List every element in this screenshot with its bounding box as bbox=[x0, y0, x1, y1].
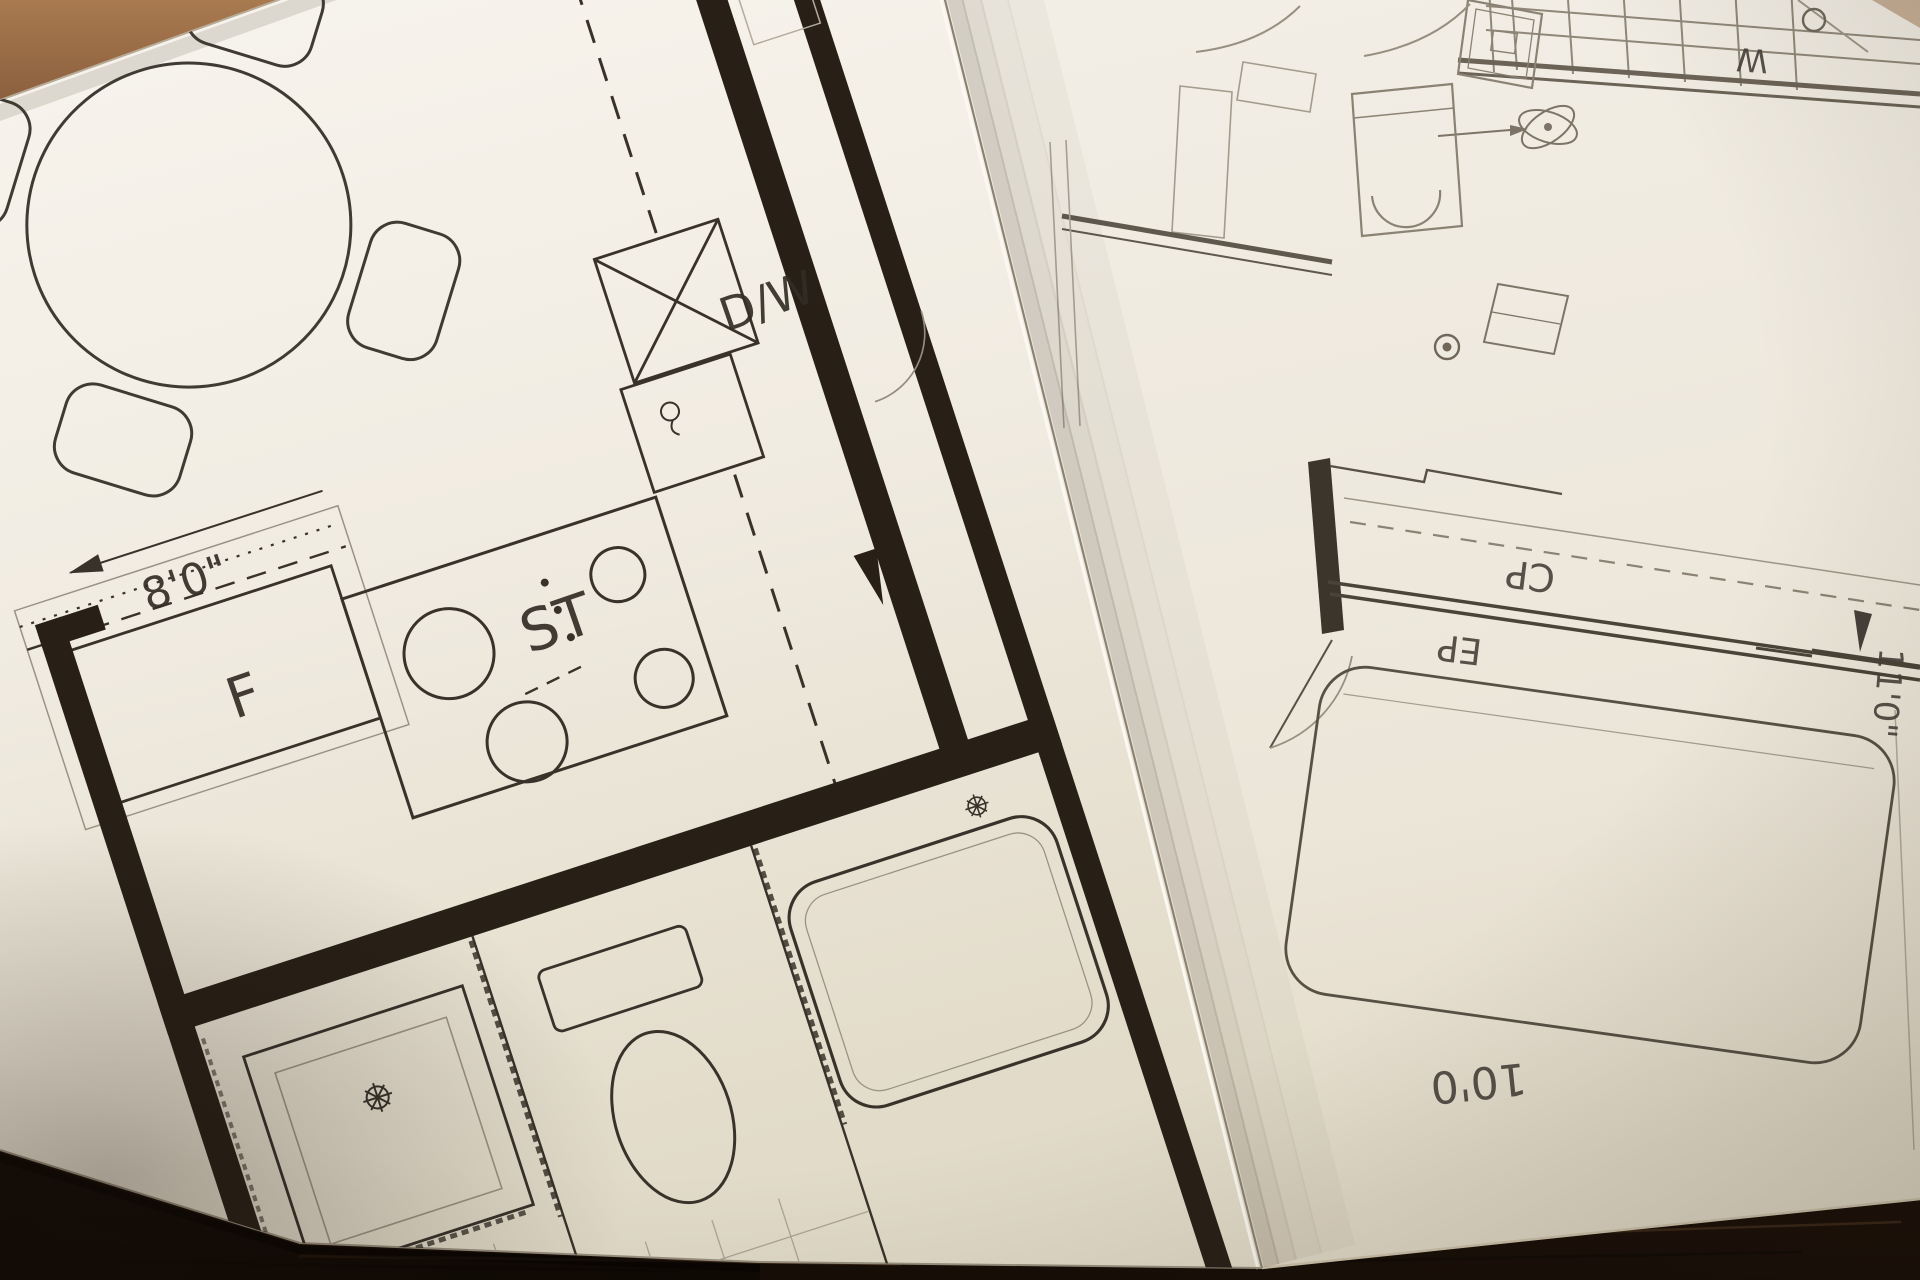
blueprint-photo-canvas: CP EP 11'0" 10'0 W bbox=[0, 0, 1920, 1280]
blueprint-photo: CP EP 11'0" 10'0 W bbox=[0, 0, 1920, 1280]
